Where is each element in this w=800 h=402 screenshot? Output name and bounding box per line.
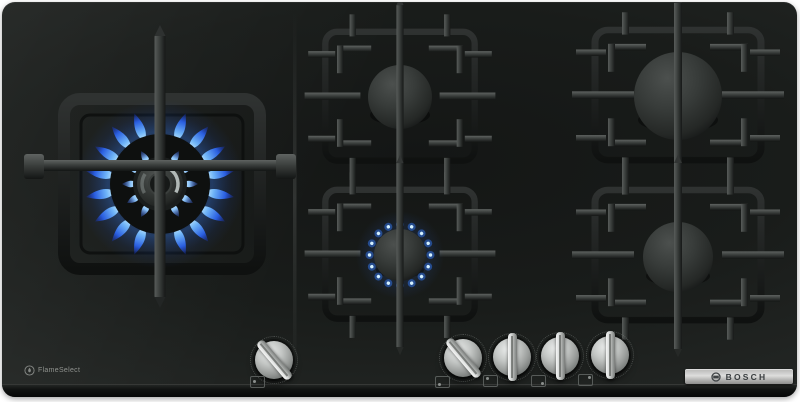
glass-reflection-seam (293, 12, 297, 384)
flameselect-label: FlameSelect (38, 367, 80, 374)
bosch-armature-icon (711, 372, 721, 382)
hob-front-edge (2, 384, 797, 397)
knob-center-front[interactable] (444, 339, 482, 377)
product-photo-stage: FlameSelect BOSCH (0, 0, 800, 402)
knob-right-rear[interactable] (591, 336, 629, 374)
bosch-logo-badge: BOSCH (685, 369, 793, 384)
pan-support-center-front (305, 155, 496, 356)
knob-right-front[interactable] (541, 337, 579, 375)
gas-hob-glass-surface: FlameSelect BOSCH (2, 2, 797, 397)
burner-position-icon (578, 374, 593, 386)
knob-tick-ring (536, 332, 584, 380)
knob-center-rear[interactable] (493, 338, 531, 376)
bosch-logo-text: BOSCH (726, 372, 768, 382)
knob-tick-ring (488, 333, 536, 381)
burner-position-icon (531, 375, 546, 387)
flameselect-flame-icon (24, 365, 35, 376)
flameselect-badge: FlameSelect (24, 365, 80, 376)
wok-burner-group (24, 25, 296, 308)
knob-tick-ring (586, 331, 634, 379)
burner-position-icon (435, 376, 450, 388)
hob-illustration (2, 2, 797, 397)
burner-position-icon (483, 375, 498, 387)
knob-tick-ring (439, 334, 487, 382)
knob-wok-burner[interactable] (255, 341, 293, 379)
pan-support-right-front (572, 155, 784, 358)
burner-position-icon (250, 376, 265, 388)
